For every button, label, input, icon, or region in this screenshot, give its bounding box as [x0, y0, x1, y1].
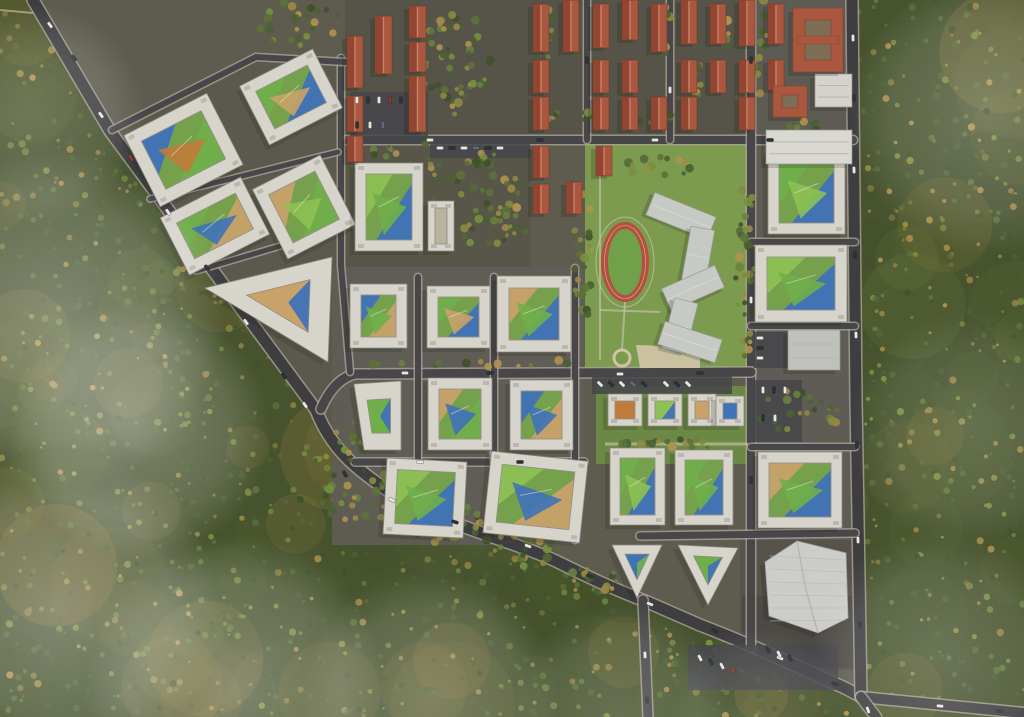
car — [517, 460, 524, 463]
residential-block — [711, 396, 744, 430]
flat-roof-building — [810, 74, 852, 111]
car — [427, 138, 434, 141]
car — [355, 97, 358, 104]
masterplan-aerial-view — [0, 0, 1024, 717]
car — [697, 371, 704, 374]
car — [853, 251, 856, 258]
residential-block — [670, 450, 733, 529]
car — [761, 415, 764, 422]
parking-lot — [754, 380, 802, 442]
residential-block — [753, 452, 842, 532]
brick-courtyard-building — [768, 86, 807, 121]
townhouse-row — [734, 0, 755, 49]
residential-block — [603, 394, 642, 430]
residential-block — [345, 284, 407, 352]
car — [366, 97, 369, 104]
car — [767, 138, 774, 141]
townhouse-row — [528, 4, 549, 55]
townhouse-row — [646, 4, 667, 55]
townhouse-row — [763, 4, 784, 47]
townhouse-row — [617, 0, 638, 43]
car — [757, 356, 764, 359]
townhouse-row — [734, 97, 755, 133]
residential-block — [423, 378, 492, 454]
townhouse-row — [588, 4, 609, 51]
residential-block — [750, 245, 847, 326]
townhouse-row — [705, 4, 726, 47]
car — [617, 372, 624, 375]
car — [355, 122, 358, 129]
residential-block — [605, 448, 665, 529]
car — [381, 122, 384, 129]
car — [497, 146, 504, 149]
townhouse-row — [588, 60, 609, 96]
townhouse-row — [705, 60, 726, 96]
car — [749, 477, 752, 484]
car — [473, 146, 480, 149]
car — [485, 146, 492, 149]
masterplan-canvas — [0, 0, 1024, 717]
townhouse-row — [342, 96, 363, 135]
car — [537, 138, 544, 141]
townhouse-row — [558, 0, 579, 55]
townhouse-row — [404, 42, 426, 75]
townhouse-row — [646, 97, 667, 133]
residential-block — [478, 451, 588, 547]
residential-block — [422, 286, 490, 352]
car — [487, 371, 494, 374]
townhouse-row — [404, 6, 426, 41]
townhouse-row — [342, 136, 363, 165]
townhouse-row — [528, 184, 549, 217]
road — [640, 533, 855, 536]
car — [749, 57, 752, 64]
car — [377, 97, 380, 104]
townhouse-row — [588, 97, 609, 133]
brick-courtyard-building — [788, 8, 843, 76]
car — [368, 122, 371, 129]
townhouse-row — [676, 60, 697, 96]
car — [851, 34, 854, 41]
car — [761, 387, 764, 394]
flat-roof-building — [761, 130, 852, 168]
car — [757, 346, 764, 349]
car — [749, 297, 752, 304]
townhouse-row — [591, 146, 612, 179]
residential-block — [492, 276, 571, 356]
townhouse-row — [342, 36, 363, 91]
townhouse-row — [617, 60, 638, 96]
townhouse-row — [370, 16, 392, 77]
townhouse-row — [528, 146, 549, 181]
townhouse-row — [528, 60, 549, 96]
townhouse-row — [561, 182, 582, 217]
car — [772, 387, 775, 394]
car — [399, 97, 402, 104]
residential-block — [505, 380, 573, 454]
car — [437, 146, 444, 149]
car — [668, 87, 671, 94]
townhouse-row — [676, 97, 697, 133]
townhouse-row — [404, 76, 426, 135]
townhouse-row — [734, 60, 755, 96]
car — [773, 415, 776, 422]
car — [417, 460, 424, 463]
car — [854, 331, 857, 338]
track-infield — [608, 229, 642, 295]
townhouse-row — [676, 0, 697, 47]
townhouse-row — [617, 97, 638, 133]
residential-block — [423, 201, 454, 255]
car — [449, 146, 456, 149]
car — [585, 57, 588, 64]
car — [402, 371, 409, 374]
residential-block — [643, 394, 682, 430]
residential-block — [350, 163, 423, 255]
car — [783, 387, 786, 394]
car — [461, 146, 468, 149]
car — [652, 138, 659, 141]
car — [852, 166, 855, 173]
car — [856, 536, 859, 543]
flat-roof-building — [783, 330, 840, 374]
townhouse-row — [528, 97, 549, 133]
car — [757, 336, 764, 339]
car — [388, 97, 391, 104]
